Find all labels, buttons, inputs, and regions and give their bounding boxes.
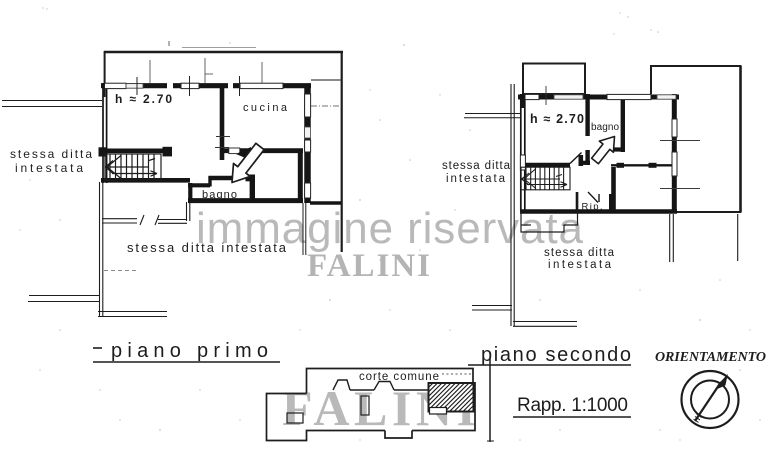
- svg-text:Rapp. 1:1000: Rapp. 1:1000: [517, 395, 628, 416]
- svg-text:stessa ditta: stessa ditta: [10, 147, 92, 161]
- svg-text:stessa ditta: stessa ditta: [442, 160, 511, 172]
- svg-text:intestata: intestata: [548, 259, 612, 271]
- svg-text:stessa ditta: stessa ditta: [544, 247, 615, 259]
- svg-text:FALINI: FALINI: [307, 248, 434, 284]
- svg-text:bagno: bagno: [591, 122, 619, 133]
- svg-text:intestata: intestata: [15, 161, 83, 175]
- svg-text:corte comune: corte comune: [359, 371, 439, 383]
- svg-text:intestata: intestata: [446, 173, 506, 185]
- svg-text:bagno: bagno: [202, 189, 237, 201]
- svg-text:ORIENTAMENTO: ORIENTAMENTO: [655, 350, 766, 365]
